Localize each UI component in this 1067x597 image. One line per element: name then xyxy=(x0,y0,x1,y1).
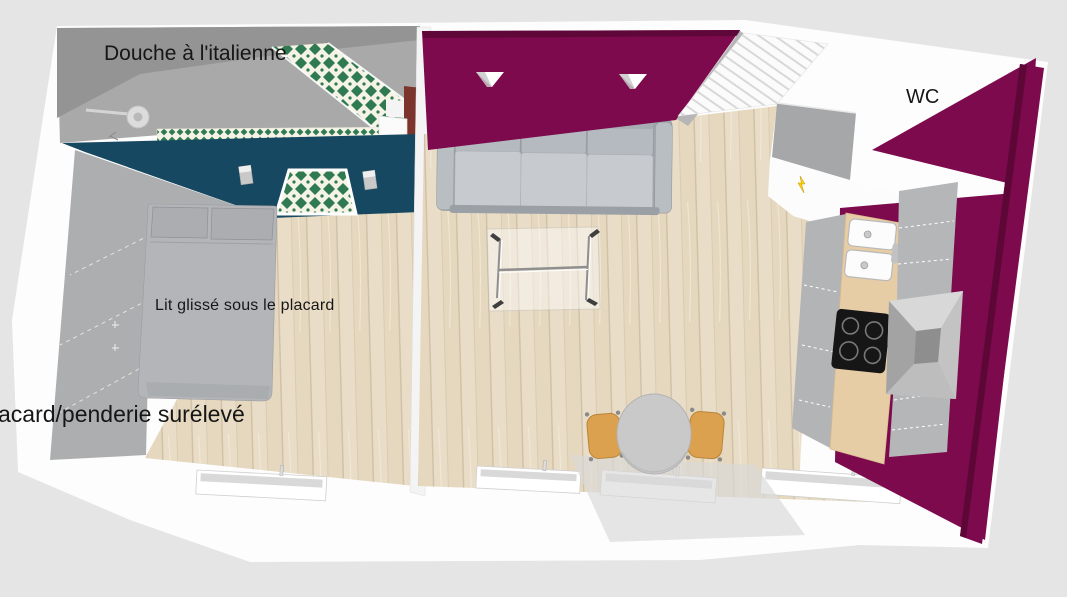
wall-lamp-right xyxy=(363,170,377,189)
wall-lamp-left xyxy=(239,165,253,184)
label-shower: Douche à l'italienne xyxy=(104,42,287,65)
label-closet: acard/penderie surélevé xyxy=(0,402,245,427)
bed-pillow-left xyxy=(151,207,208,238)
sofa-seat-cushions xyxy=(455,151,654,211)
label-wc: WC xyxy=(906,86,939,108)
floorplan-canvas: Douche à l'italienne WC Lit glissé sous … xyxy=(0,0,1067,597)
bed-pillow-right xyxy=(211,208,274,240)
teal-wall-tile-panel xyxy=(276,170,356,214)
shower-head-center xyxy=(134,113,143,122)
coffee-table xyxy=(487,227,600,311)
wall-cabinets-upper xyxy=(897,182,958,301)
cooktop xyxy=(831,308,891,373)
dining-table xyxy=(617,394,691,474)
sofa-arm-right xyxy=(655,122,673,213)
label-bed: Lit glissé sous le placard xyxy=(155,297,335,315)
range-hood xyxy=(886,291,963,399)
bathroom-shelf-upper xyxy=(386,99,404,118)
dining-chair-right xyxy=(686,407,727,462)
